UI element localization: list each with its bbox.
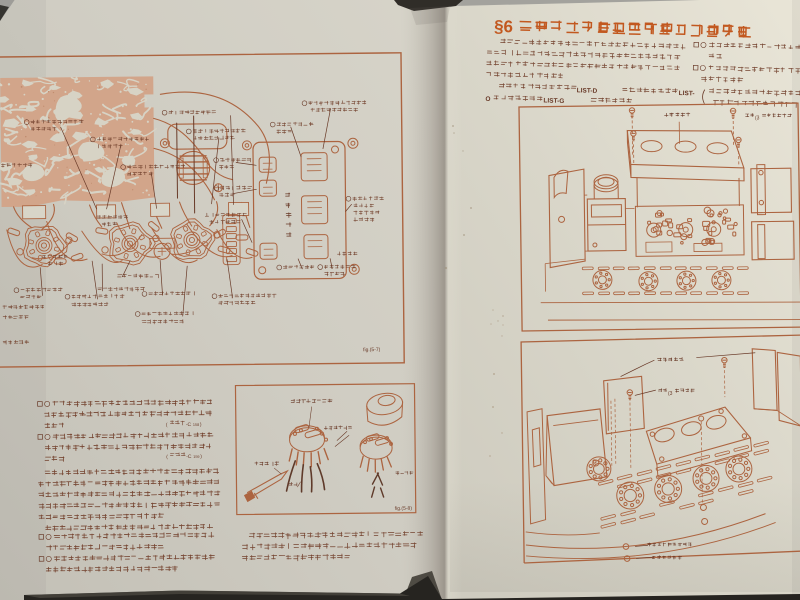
svg-text:LIST-: LIST- (679, 90, 695, 97)
svg-text:158: 158 (193, 423, 199, 427)
svg-text:159: 159 (193, 455, 199, 459)
svg-text:(3: (3 (668, 391, 673, 397)
svg-text:-C: -C (186, 454, 192, 460)
svg-text:(3: (3 (755, 116, 760, 122)
svg-text:fig.(5-7): fig.(5-7) (363, 347, 381, 353)
svg-text:fig.(5-8): fig.(5-8) (395, 506, 413, 512)
svg-text:§6: §6 (494, 17, 513, 36)
svg-text:LIST-G: LIST-G (543, 97, 564, 105)
svg-text:O: O (485, 96, 490, 103)
svg-text:LIST-D: LIST-D (577, 87, 598, 95)
svg-text:-C: -C (186, 422, 192, 428)
